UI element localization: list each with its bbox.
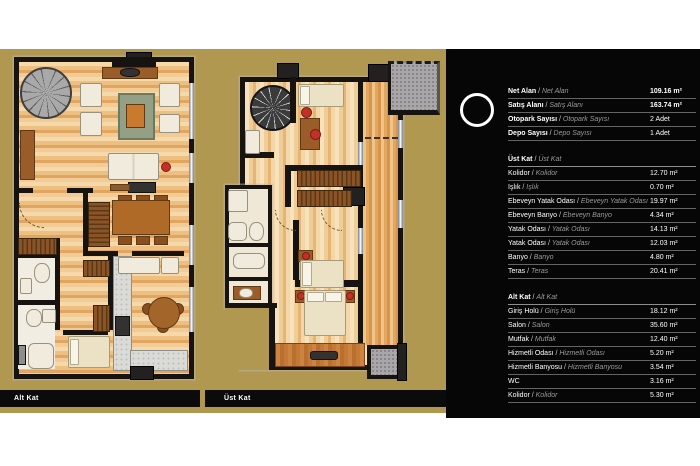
stool [301,107,312,118]
tv-unit [128,182,156,193]
bed-pillow [70,339,79,365]
exterior-cutout [225,308,269,370]
spec-row: WC3.16 m² [508,375,696,389]
interior-wall [285,165,291,207]
spiral-staircase [20,67,72,119]
dining-chair [118,236,132,245]
toilet [34,263,50,283]
pantry-shelves [93,305,110,332]
terrace-railing [365,137,398,139]
alt-kat-label: Alt Kat [14,395,39,402]
spec-row: Ebeveyn Yatak Odası / Ebeveyn Yatak Odas… [508,195,696,209]
toilet [249,222,264,241]
nightstand-lamp [346,292,354,300]
wardrobe [83,260,110,277]
spec-row: Kolidor / Kolidor5.30 m² [508,389,696,403]
window [398,120,403,148]
spec-row: Yatak Odası / Yatak Odası12.03 m² [508,237,696,251]
spec-row: Teras / Teras20.41 m² [508,265,696,279]
wardrobe [297,190,352,207]
spec-row: Işlık / Işlık0.70 m² [508,181,696,195]
window [398,200,403,228]
window [189,287,194,332]
interior-wall [132,251,184,256]
ust-kat-label: Üst Kat [224,395,251,402]
bathtub [28,343,54,369]
console-cabinet [20,130,35,180]
spec-row: Satış Alanı / Satış Alanı163.74 m² [508,99,696,113]
radiator [18,345,26,365]
bed-pillow [307,292,324,302]
floor-plan-ust-kat [225,60,437,378]
plans-background: Alt Kat Üst Kat [0,49,446,413]
floor-plan-brochure: Alt Kat Üst Kat Net Alan / Net Alan109.1… [0,0,700,466]
dining-table [112,200,170,235]
interior-wall [225,277,272,281]
sink [20,278,32,294]
vanity-sink [228,190,248,212]
chimney-block [130,366,154,380]
spec-row: Yatak Odası / Yatak Odası14.13 m² [508,223,696,237]
spec-row: Hizmetli Banyosu / Hizmetli Banyosu3.54 … [508,361,696,375]
section-header-row: Üst Kat / Üst Kat [508,153,696,167]
spec-row: Depo Sayısı / Depo Sayısı1 Adet [508,127,696,141]
sink [42,309,56,323]
sofa [108,153,159,180]
spec-row: Banyo / Banyo4.80 m² [508,251,696,265]
terrace-floor [363,82,398,345]
master-bathtub [233,253,265,269]
logo-circle-icon [460,93,494,127]
floor-plan-alt-kat [14,57,194,379]
bed-pillow [300,86,310,105]
media-shelf [110,184,130,191]
window [189,153,194,183]
wall-block [397,343,407,381]
dining-chair [154,236,168,245]
oven [115,316,130,336]
interior-wall [290,77,296,123]
terrace-bench [310,351,338,360]
desk-chair [310,129,321,140]
info-panel: Net Alan / Net Alan109.16 m²Satış Alanı … [446,49,700,418]
wardrobe [88,202,110,247]
spec-row: Salon / Salon35.60 m² [508,319,696,333]
bathtub [228,222,247,241]
armchair [159,114,180,133]
coffee-table [126,104,145,128]
armchair [80,112,102,136]
section-header-row: Alt Kat / Alt Kat [508,291,696,305]
interior-wall [225,243,272,247]
spec-table: Net Alan / Net Alan109.16 m²Satış Alanı … [508,85,696,403]
window [189,225,194,265]
spec-row: Ebeveyn Banyo / Ebeveyn Banyo4.34 m² [508,209,696,223]
interior-wall [14,188,33,193]
spec-row: Net Alan / Net Alan109.16 m² [508,85,696,99]
window [189,83,194,139]
spec-row: Hizmetli Odası / Hizmetli Odası5.20 m² [508,347,696,361]
armchair [159,83,180,107]
armchair [80,83,102,107]
spec-row: Otopark Sayısı / Otopark Sayısı2 Adet [508,113,696,127]
closet [245,130,260,154]
refrigerator [161,257,179,274]
interior-wall [67,188,93,193]
sink [239,288,253,298]
floor-lamp [161,162,171,172]
wardrobe [297,170,361,187]
spec-row: Mutfak / Mutfak12.40 m² [508,333,696,347]
alt-kat-label-strip: Alt Kat [0,390,200,407]
fireplace-hearth [120,68,140,77]
toilet [26,309,42,327]
kitchen-cabinet [118,257,160,274]
bed-pillow [302,262,312,286]
ust-kat-label-strip: Üst Kat [205,390,446,407]
dining-chair [136,236,150,245]
bed-pillow [325,292,342,302]
wardrobe [18,238,57,255]
spec-row: Kolidor / Kolidor12.70 m² [508,167,696,181]
nightstand-lamp [302,252,310,260]
spec-row: Giriş Holü / Giriş Holü18.12 m² [508,305,696,319]
balcony-gray-deck [388,61,440,115]
breakfast-table [148,297,180,329]
wall-block [368,64,390,82]
